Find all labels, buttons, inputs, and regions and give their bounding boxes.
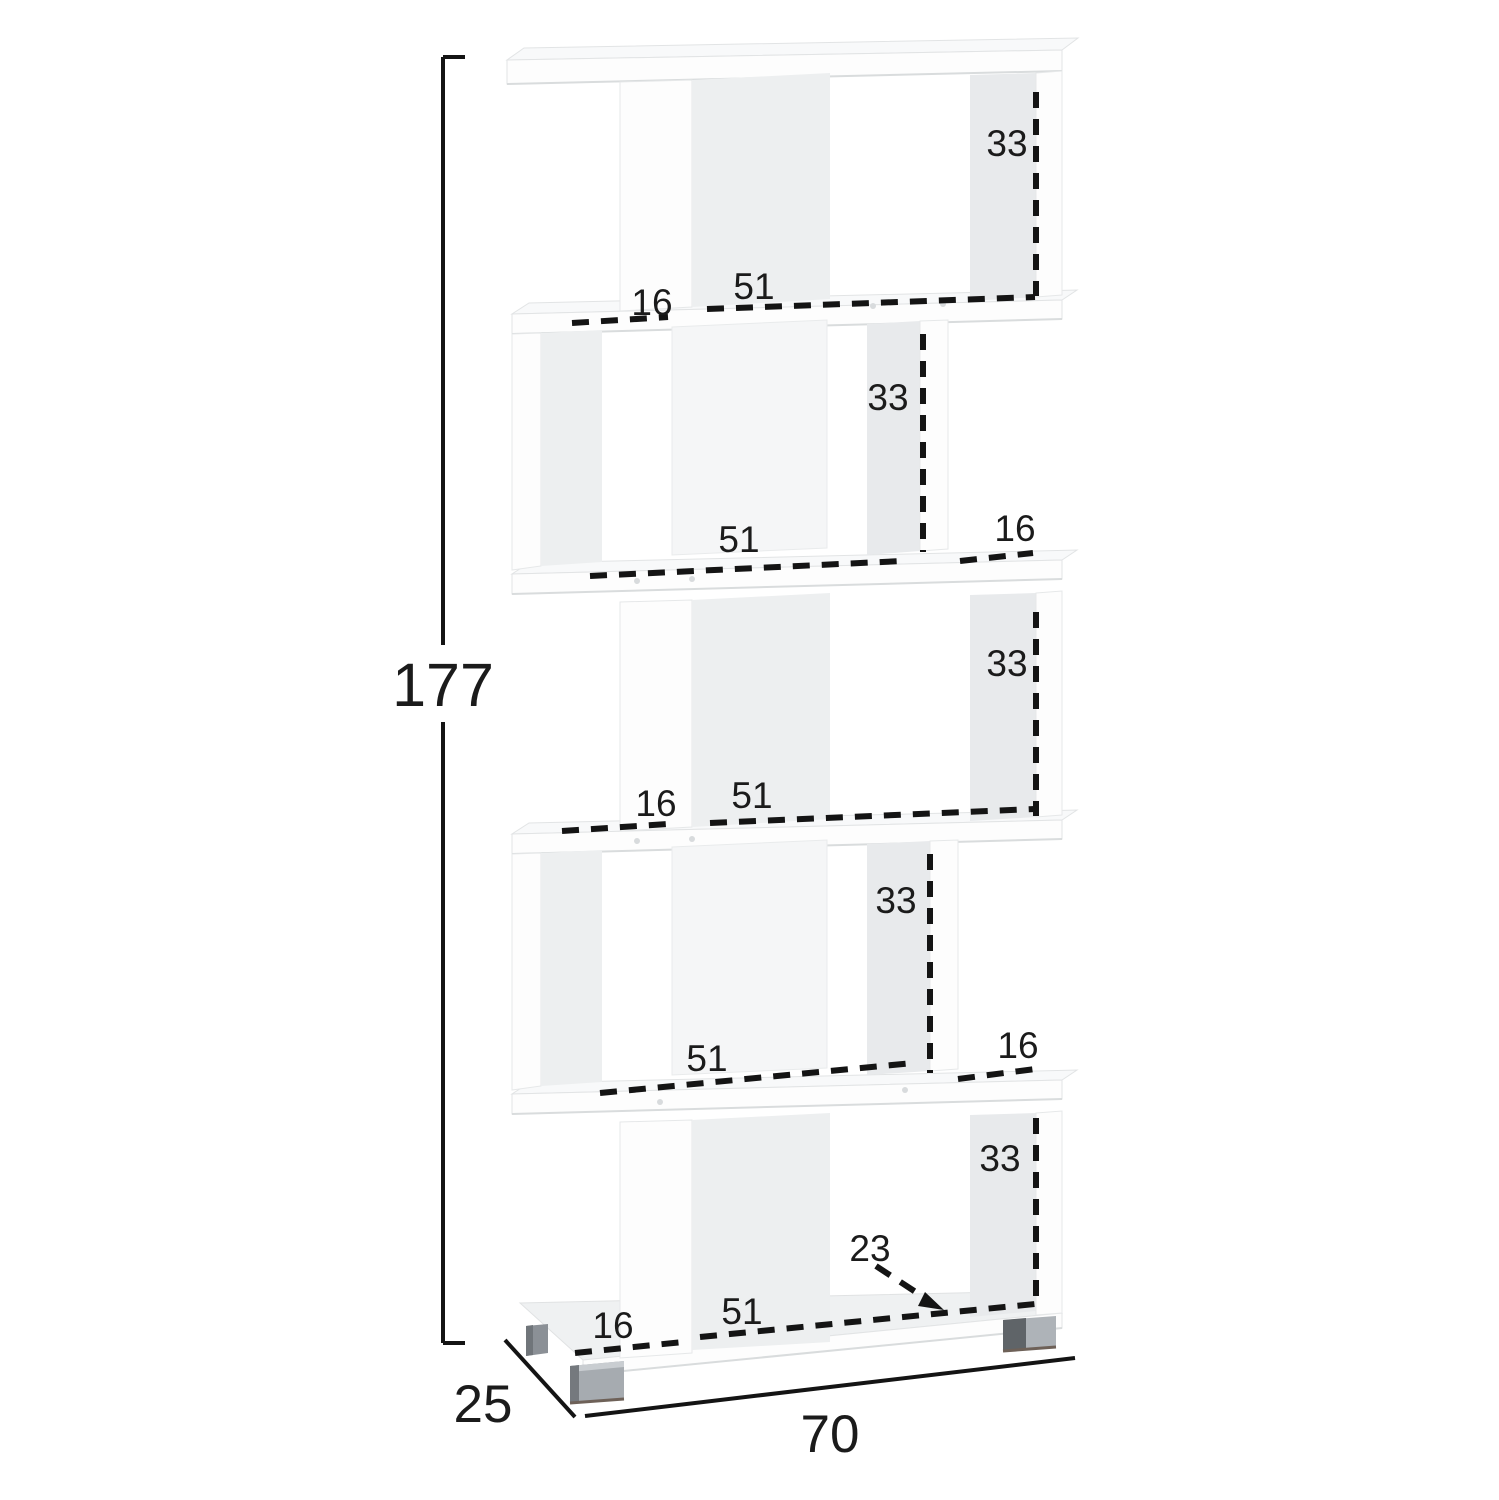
tier3-right-panel-inner [970,593,1036,821]
tier1-divider-front [620,80,692,311]
front-right-foot [1003,1316,1056,1351]
tier3-right-panel-edge [1036,591,1062,817]
tier1-right-panel-edge [1036,71,1062,297]
tier5-side-label: 16 [592,1305,633,1346]
tier3-width-label: 51 [731,775,772,816]
bookcase [507,38,1078,1403]
back-left-foot [526,1324,548,1356]
tier2-divider-front [920,320,948,551]
tier4-left-panel-inner [541,850,602,1086]
tier3-height-label: 33 [986,643,1027,684]
tier-1-panels [620,71,1062,311]
tier4-divider-shade [867,841,930,1075]
depth-dimension: 25 [454,1340,575,1434]
tier2-height-label: 33 [867,377,908,418]
width-label: 70 [801,1405,860,1464]
front-left-foot [570,1361,624,1403]
tier4-height-label: 33 [875,880,916,921]
tier1-width-label: 51 [733,266,774,307]
tier4-left-panel-edge [512,853,541,1090]
tier2-left-panel-edge [512,333,541,570]
depth-label: 25 [454,1375,513,1434]
tier3-side-label: 16 [635,783,676,824]
height-label: 177 [392,651,494,719]
tier5-width-label: 51 [721,1291,762,1332]
tier2-left-panel-inner [541,330,602,566]
bookcase-dimension-diagram: 33 51 16 33 51 16 33 51 16 33 51 [0,0,1499,1500]
tier1-right-panel-inner [970,73,1036,301]
tier-3-panels [620,591,1062,831]
tier2-side-label: 16 [994,508,1035,549]
tier5-depth-label: 23 [849,1228,890,1269]
tier4-width-label: 51 [686,1038,727,1079]
tier4-side-label: 16 [997,1025,1038,1066]
width-dimension: 70 [585,1358,1075,1464]
tier5-height-label: 33 [979,1138,1020,1179]
tier1-height-label: 33 [986,123,1027,164]
tier5-right-panel-edge [1036,1111,1062,1315]
tier1-side-label: 16 [631,282,672,323]
height-dimension: 177 [392,57,494,1343]
tier4-divider-front [930,840,958,1071]
tier2-divider-shade [867,321,920,555]
diagram-canvas: 33 51 16 33 51 16 33 51 16 33 51 [0,0,1499,1500]
tier2-width-label: 51 [718,519,759,560]
tier-4-panels [512,840,958,1090]
